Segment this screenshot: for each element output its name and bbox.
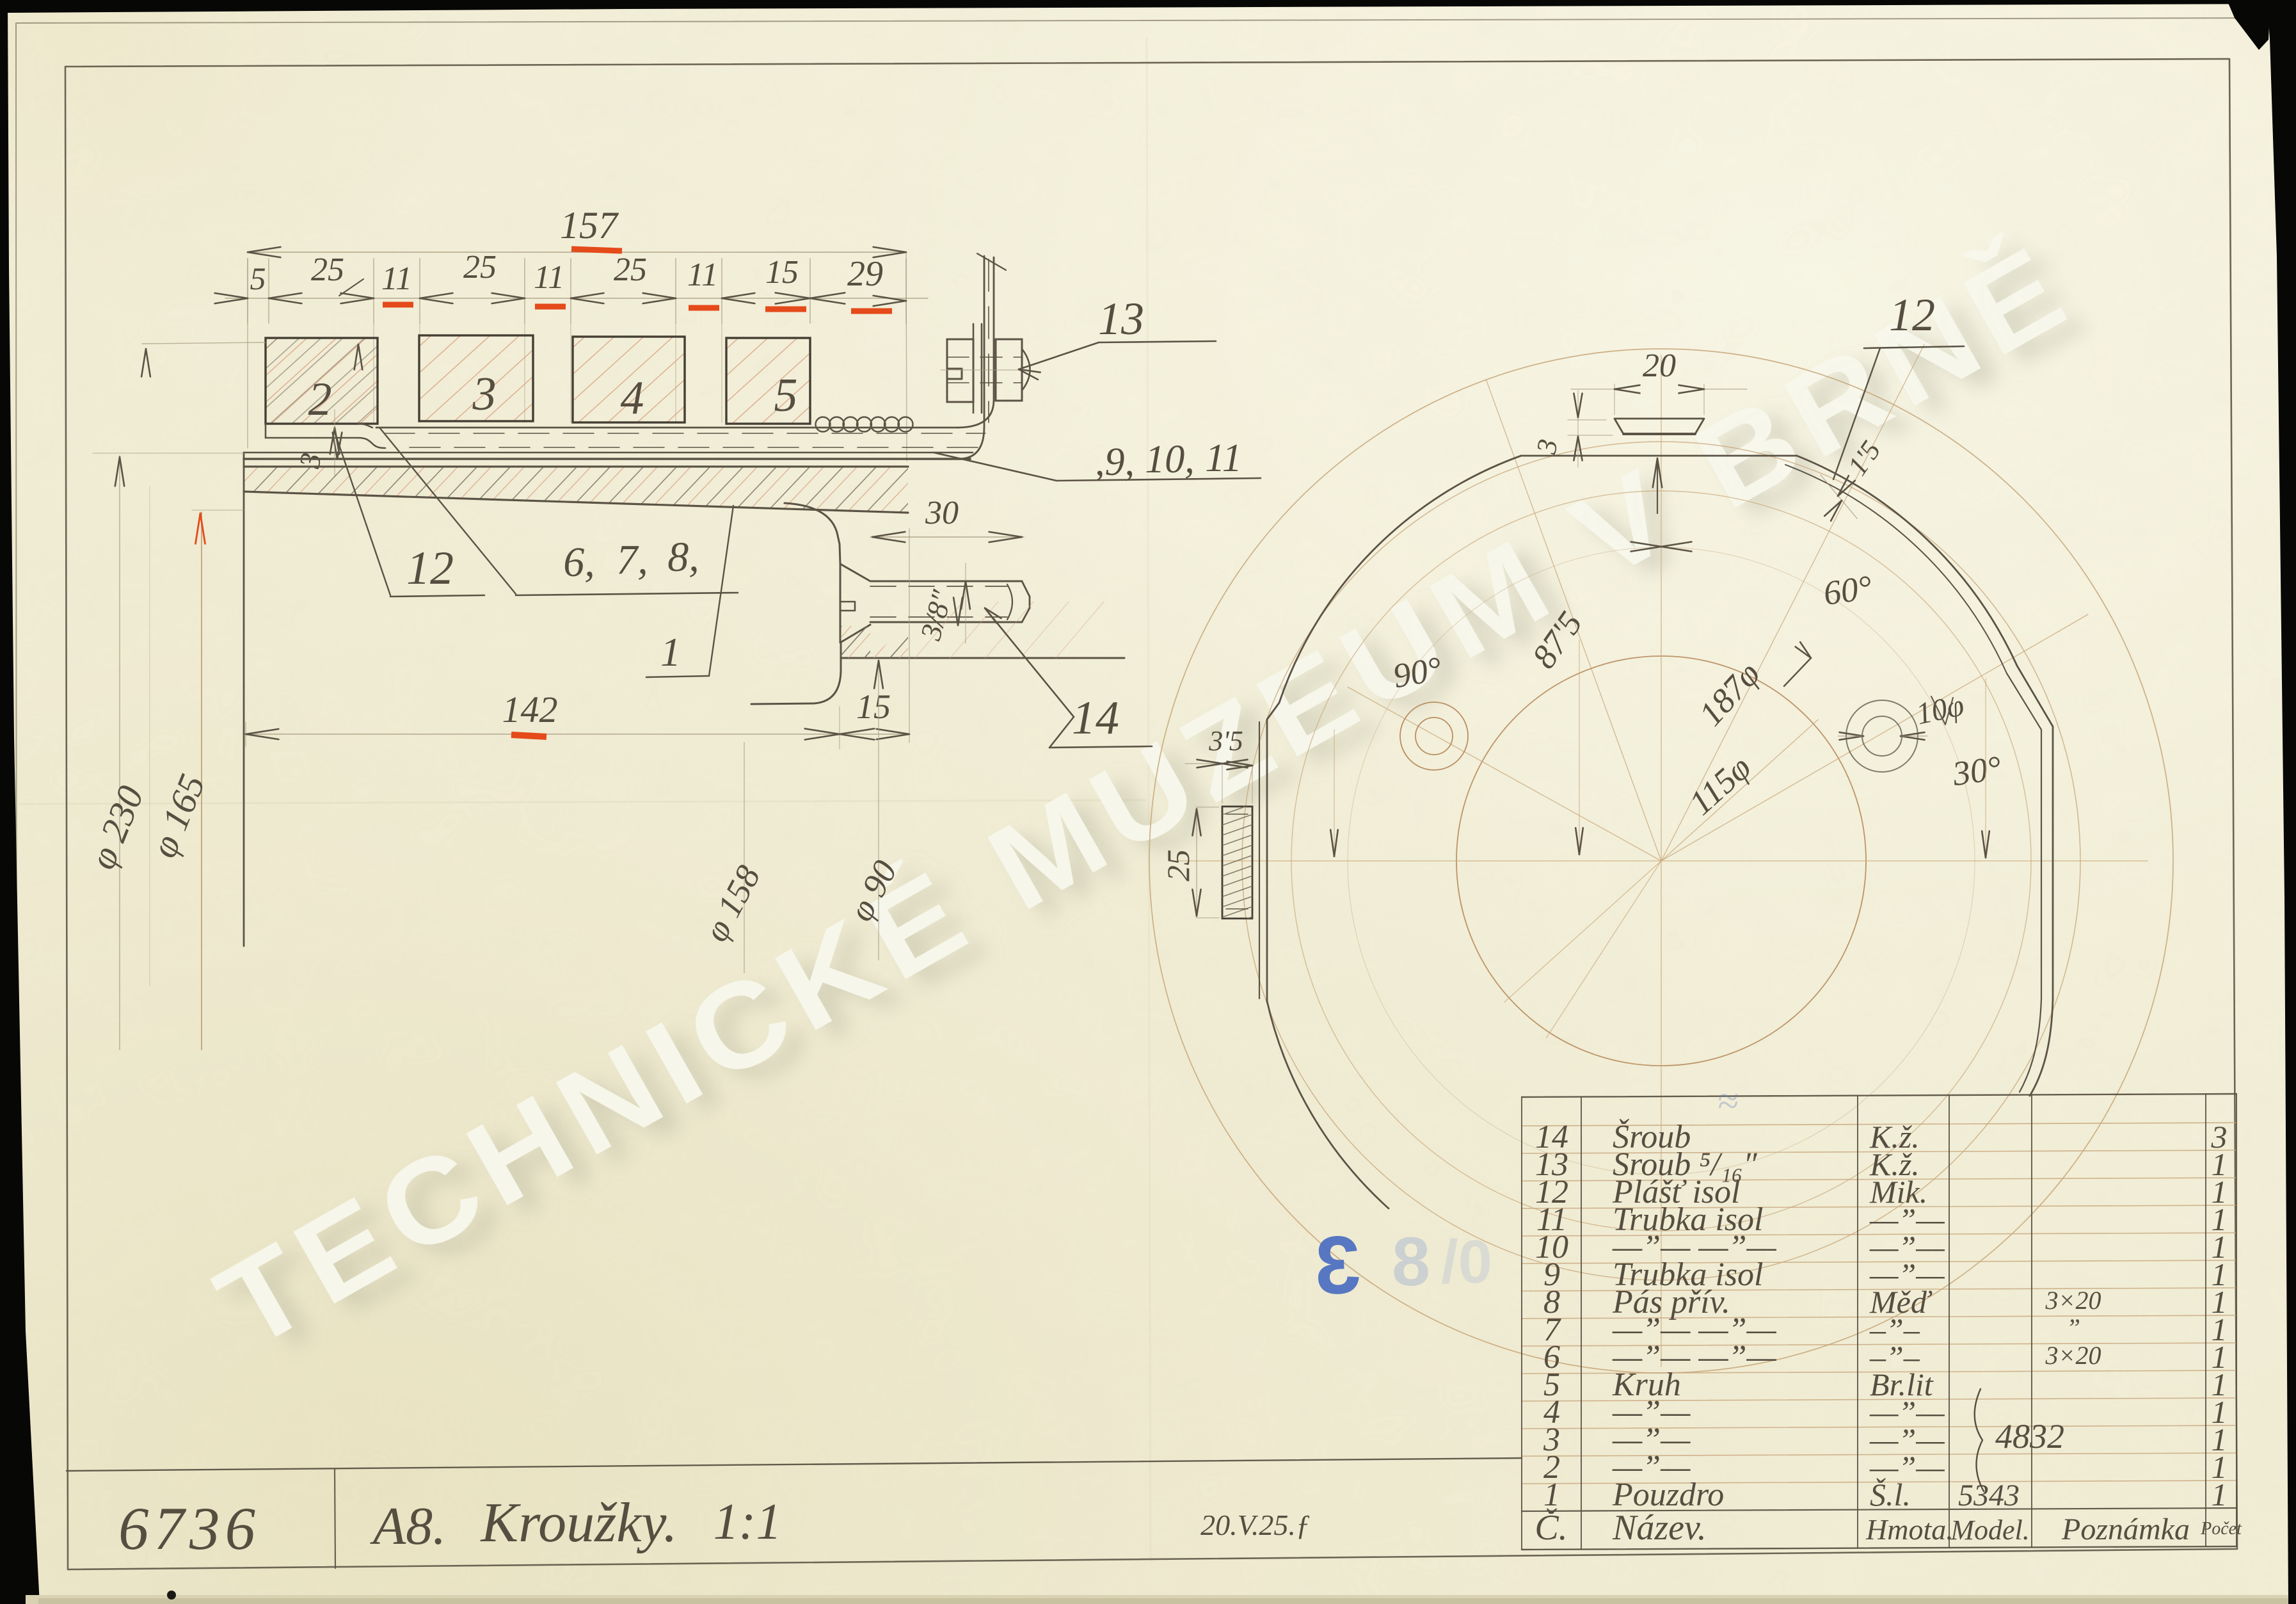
svg-text:6,: 6, bbox=[563, 539, 595, 586]
svg-text:3'5: 3'5 bbox=[1208, 725, 1243, 757]
svg-text:Kroužky.: Kroužky. bbox=[479, 1492, 677, 1554]
svg-text:11: 11 bbox=[687, 257, 718, 293]
svg-text:25: 25 bbox=[311, 252, 344, 288]
svg-text:4: 4 bbox=[621, 372, 644, 424]
svg-text:1: 1 bbox=[660, 629, 681, 675]
svg-text:,9,: ,9, bbox=[1095, 440, 1135, 484]
svg-text:25: 25 bbox=[614, 252, 647, 288]
svg-text:60°: 60° bbox=[1821, 568, 1874, 613]
svg-text:5: 5 bbox=[774, 369, 798, 422]
svg-text:≈: ≈ bbox=[1718, 1080, 1739, 1122]
svg-text:25: 25 bbox=[463, 249, 497, 285]
svg-text:8,: 8, bbox=[667, 534, 699, 581]
svg-text:”: ” bbox=[2066, 1313, 2080, 1342]
svg-text:3: 3 bbox=[1313, 1219, 1362, 1311]
svg-text:20: 20 bbox=[1643, 348, 1676, 384]
svg-text:3×20: 3×20 bbox=[2045, 1286, 2101, 1315]
svg-text:10,: 10, bbox=[1145, 438, 1195, 481]
svg-text:Počet: Počet bbox=[2200, 1519, 2242, 1539]
svg-text:30°: 30° bbox=[1950, 748, 2004, 793]
svg-text:8: 8 bbox=[1392, 1223, 1430, 1300]
svg-text:A8.: A8. bbox=[370, 1496, 446, 1556]
svg-text:5343: 5343 bbox=[1958, 1479, 2020, 1512]
svg-text:30: 30 bbox=[925, 495, 959, 531]
svg-text:11: 11 bbox=[381, 261, 412, 297]
svg-text:5: 5 bbox=[250, 261, 266, 296]
svg-text:/0: /0 bbox=[1441, 1228, 1492, 1296]
svg-text:Š.l.: Š.l. bbox=[1870, 1477, 1911, 1512]
svg-text:Hmota.: Hmota. bbox=[1865, 1513, 1954, 1546]
svg-text:20.V.25.ƒ: 20.V.25.ƒ bbox=[1200, 1509, 1311, 1541]
svg-text:25: 25 bbox=[1160, 849, 1196, 881]
svg-text:Č.: Č. bbox=[1535, 1508, 1567, 1548]
svg-text:Název.: Název. bbox=[1612, 1508, 1707, 1548]
svg-text:12: 12 bbox=[406, 542, 454, 595]
svg-text:4832: 4832 bbox=[1995, 1417, 2064, 1456]
svg-text:Model.: Model. bbox=[1950, 1514, 2029, 1546]
svg-text:Poznámka: Poznámka bbox=[2061, 1512, 2190, 1546]
svg-text:29: 29 bbox=[847, 254, 883, 294]
svg-text:3×20: 3×20 bbox=[2045, 1341, 2101, 1370]
svg-text:15: 15 bbox=[856, 687, 891, 726]
svg-text:1:1: 1:1 bbox=[714, 1494, 782, 1550]
svg-text:11: 11 bbox=[534, 259, 564, 296]
svg-text:14: 14 bbox=[1072, 692, 1119, 744]
svg-text:157: 157 bbox=[560, 204, 619, 246]
svg-text:15: 15 bbox=[765, 254, 799, 291]
svg-text:7,: 7, bbox=[616, 536, 648, 583]
svg-text:13: 13 bbox=[1098, 293, 1144, 344]
svg-text:1: 1 bbox=[2212, 1477, 2228, 1512]
svg-text:142: 142 bbox=[502, 689, 558, 730]
svg-text:11: 11 bbox=[1205, 437, 1241, 480]
svg-text:12: 12 bbox=[1889, 289, 1935, 341]
svg-text:2: 2 bbox=[308, 373, 332, 426]
svg-text:3: 3 bbox=[472, 368, 497, 421]
svg-text:6736: 6736 bbox=[118, 1495, 260, 1562]
